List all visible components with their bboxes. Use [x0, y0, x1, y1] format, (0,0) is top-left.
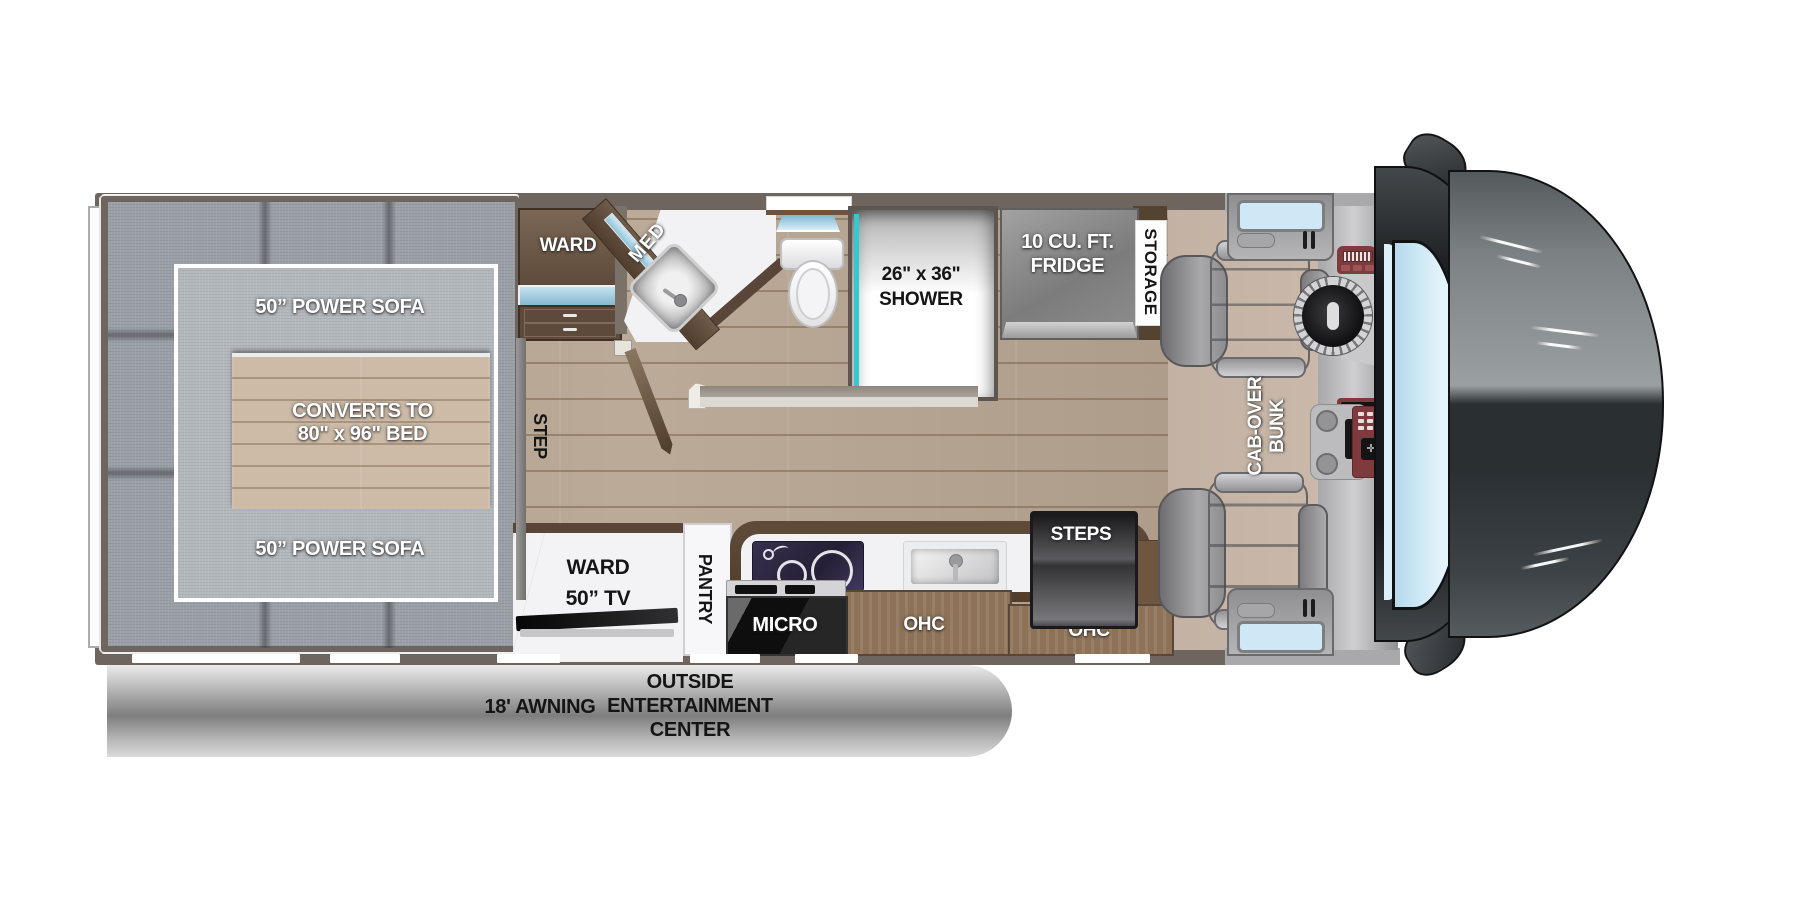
- bottom-wall-window: [795, 654, 858, 663]
- shower-label-line2: SHOWER: [858, 287, 984, 312]
- cab-door-passenger: [1227, 588, 1334, 656]
- hood: [1448, 170, 1664, 638]
- drawer: [524, 323, 616, 337]
- bottom-wall-window: [1075, 654, 1150, 663]
- cooktop-vent-line: [772, 544, 791, 559]
- dash-button: [1367, 419, 1373, 423]
- cab-over-line2: BUNK: [1267, 364, 1289, 488]
- shower-label: 26" x 36" SHOWER: [858, 262, 984, 312]
- bed-label-line2: 80" x 96" BED: [240, 423, 485, 446]
- drawer-handle: [563, 314, 577, 317]
- sofa-top-label: 50” POWER SOFA: [190, 296, 490, 319]
- half-wall-top: [700, 386, 978, 397]
- drawer: [524, 309, 616, 323]
- bottom-wall-window: [690, 654, 760, 663]
- door-hinge: [1303, 599, 1307, 617]
- refrigerator-base: [1002, 322, 1137, 338]
- dash-button: [1365, 265, 1374, 271]
- outside-line1: OUTSIDE: [575, 670, 805, 694]
- steps-label: STEPS: [1030, 524, 1132, 546]
- toilet-seat: [796, 268, 830, 320]
- cab-door-handle: [1237, 603, 1275, 618]
- dash-button: [1353, 265, 1362, 271]
- shower-label-line1: 26" x 36": [858, 262, 984, 287]
- tv-ward-line1: WARD: [513, 552, 683, 583]
- sofa-cushion-divider: [382, 202, 396, 266]
- cab-door-window: [1237, 621, 1325, 653]
- microwave-vent-slot: [735, 585, 777, 594]
- pantry-label: PANTRY: [690, 529, 720, 649]
- drawer-handle: [563, 328, 577, 331]
- bottom-wall-window: [330, 654, 400, 663]
- ohc-kitchen-label: OHC: [840, 614, 1008, 636]
- console-cupholder: [1316, 453, 1338, 475]
- fridge-label: 10 CU. FT. FRIDGE: [1000, 230, 1135, 278]
- fridge-label-line1: 10 CU. FT.: [1000, 230, 1135, 254]
- steering-wheel-hub: [1327, 302, 1339, 330]
- outside-entertainment-label: OUTSIDE ENTERTAINMENT CENTER: [575, 670, 805, 742]
- half-wall-face: [700, 397, 978, 407]
- cab-over-line1: CAB-OVER: [1245, 364, 1267, 488]
- bed-label-line1: CONVERTS TO: [240, 400, 485, 423]
- tv-base: [520, 629, 674, 637]
- door-hinge: [1303, 231, 1307, 249]
- tv-wardrobe-label: WARD 50” TV: [513, 552, 683, 614]
- bed-label: CONVERTS TO 80" x 96" BED: [240, 400, 485, 446]
- outside-line2: ENTERTAINMENT CENTER: [575, 694, 805, 742]
- dash-vent-grille: [1343, 251, 1373, 262]
- kitchen-sink: [903, 541, 1007, 592]
- floorplan-canvas: 50” POWER SOFA CONVERTS TO 80" x 96" BED…: [0, 0, 1800, 920]
- microwave-label: MICRO: [726, 614, 844, 637]
- fridge-label-line2: FRIDGE: [1000, 254, 1135, 278]
- bath-window-shelf: [766, 210, 850, 215]
- door-hinge: [1311, 231, 1315, 249]
- sink-faucet-stem: [953, 564, 958, 582]
- dash-button: [1367, 426, 1373, 430]
- dash-button: [1341, 265, 1350, 271]
- steering-wheel: [1294, 277, 1372, 355]
- cab-over-bunk-label: CAB-OVER BUNK: [1245, 364, 1289, 488]
- cab-door-driver: [1227, 193, 1334, 261]
- door-hinge: [1311, 599, 1315, 617]
- bottom-wall-window: [497, 654, 560, 663]
- sofa-bottom-label: 50” POWER SOFA: [190, 538, 490, 561]
- cab-door-window: [1237, 200, 1325, 232]
- bottom-wall-window: [132, 654, 300, 663]
- dash-button: [1358, 412, 1364, 416]
- toilet-bowl: [788, 260, 838, 328]
- dash-button: [1358, 419, 1364, 423]
- dash-button: [1358, 426, 1364, 430]
- bath-faucet: [674, 294, 687, 307]
- cab-door-handle: [1237, 233, 1275, 248]
- sofa-cushion-divider: [108, 466, 176, 480]
- wardrobe-drawers: [518, 305, 622, 341]
- seat-headrest: [1298, 504, 1328, 599]
- dash-button: [1367, 412, 1373, 416]
- sofa-cushion-divider: [258, 202, 272, 266]
- bath-window-sill: [776, 215, 840, 232]
- sofa-cushion-divider: [108, 328, 176, 342]
- step-label: STEP: [524, 401, 556, 471]
- console-cupholder: [1316, 410, 1338, 432]
- microwave-vent-slot: [785, 585, 815, 594]
- dash-vent-panel: [1337, 246, 1379, 274]
